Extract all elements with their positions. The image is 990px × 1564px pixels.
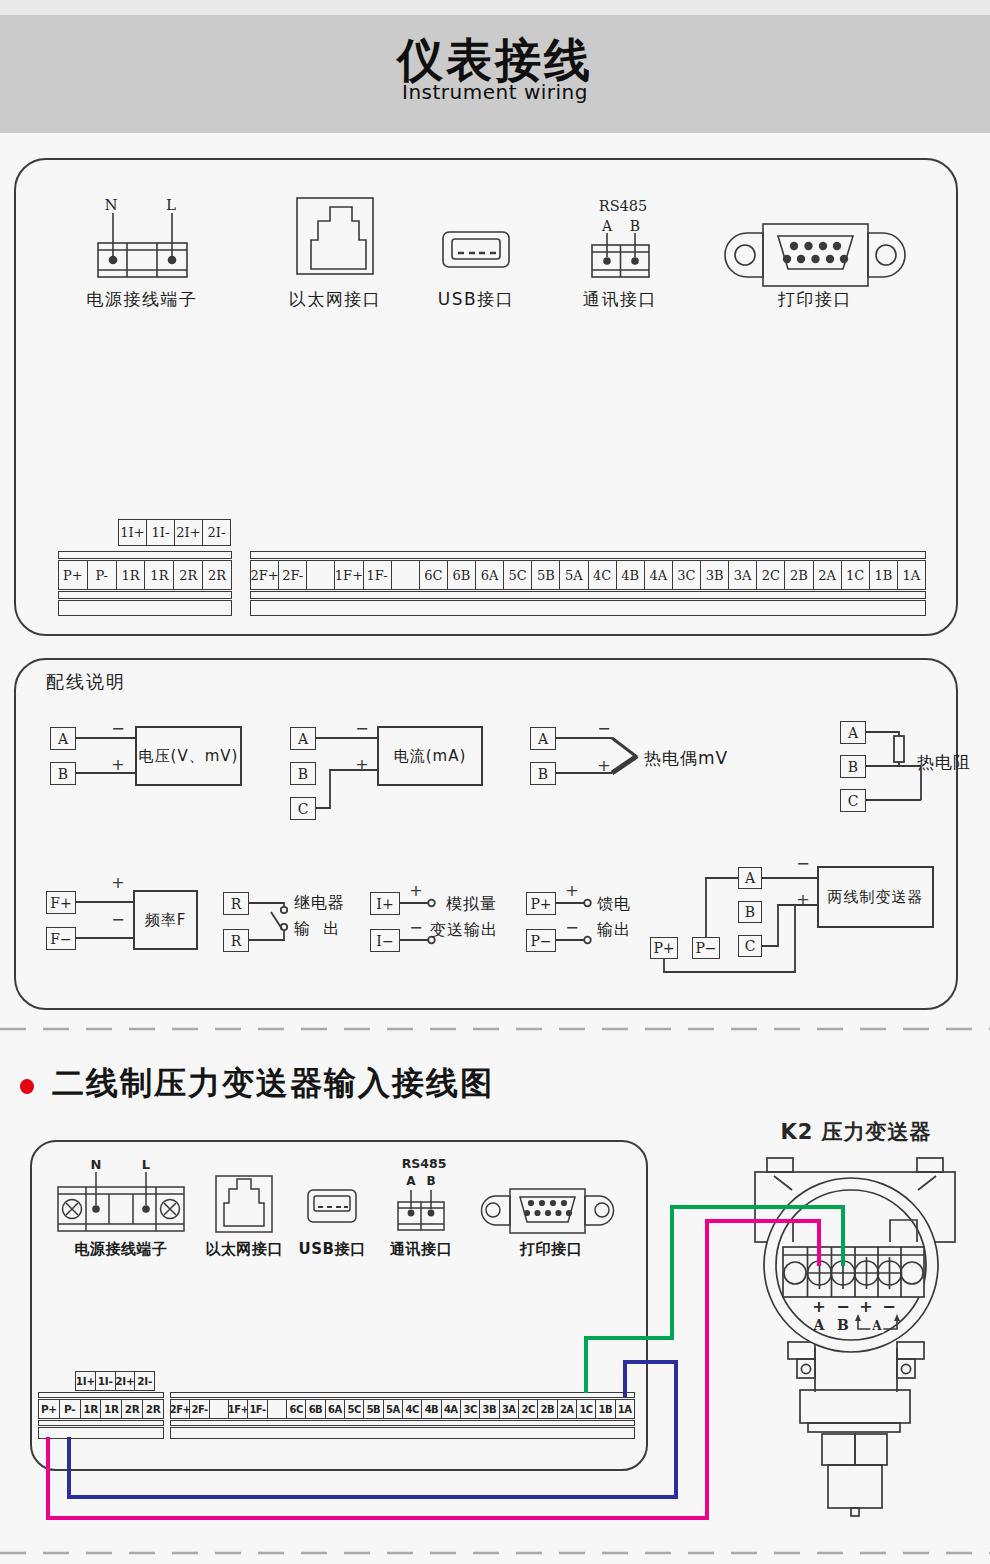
terminal-cell: 5A [383,1400,402,1418]
transmitter-sign-1: + [812,1297,825,1316]
rs485-pin-a: A [406,1174,415,1188]
feed-out-label-line2: 输出 [597,920,631,941]
wiring-notes-title: 配线说明 [46,670,126,694]
pressure-transmitter-drawing [755,1158,955,1516]
terminal-b: B [738,901,762,923]
terminal-cells: 2F+2F-1F+1F-6C6B6A5C5B5A4C4B4A3C3B3A2C2B… [170,1399,635,1419]
pin-l-label: L [142,1157,150,1172]
terminal-cell: 1F- [247,1400,266,1418]
terminal-cell: 2R [173,561,202,589]
voltage-box: 电压(V、mV) [135,726,242,786]
minus-sign: − [355,719,368,738]
strip-base [250,600,926,616]
rs485-label: RS485 [402,1156,447,1171]
terminal-c: C [738,935,762,957]
terminal-p-plus: P+ [526,892,556,915]
page-header: 仪表接线 Instrument wiring [0,15,990,133]
terminal-cell: 4A [441,1400,460,1418]
terminal-a: A [738,867,762,889]
terminal-cell: 2R [202,561,231,589]
terminal-cell: 6B [305,1400,324,1418]
wiring-notes-panel [14,658,958,1010]
terminal-cell: 1R [100,1400,121,1418]
strip-bar [250,551,926,559]
terminal-cell: P+ [39,1400,59,1418]
plus-sign: + [111,873,124,892]
terminal-cell: 1I+ [76,1372,95,1390]
terminal-cell: 2C [518,1400,537,1418]
minus-sign: − [796,854,809,873]
terminal-cell [267,1400,286,1418]
terminal-cell: 4B [616,561,644,589]
terminal-p-plus: P+ [650,937,678,959]
terminal-cell: P- [87,561,116,589]
frequency-box: 频率F [133,890,198,950]
relay-label-line2: 输 出 [294,919,340,940]
terminal-cell: 5B [531,561,559,589]
terminal-cells: P+P-1R1R2R2R [38,1399,164,1419]
pin-l-label: L [166,196,176,214]
terminal-cell: 4A [644,561,672,589]
terminal-a: A [840,721,866,744]
terminal-b: B [530,762,556,785]
terminal-cell: 2I- [134,1372,154,1390]
transmitter-sign-2: − [836,1297,849,1316]
strip-base [38,1427,164,1439]
terminal-cell: 1B [595,1400,614,1418]
rtd-label: 热电阻 [917,751,971,774]
rs485-pin-b: B [630,218,640,234]
plus-sign: + [111,755,124,774]
minus-sign: − [409,918,422,937]
terminal-cell: 3B [479,1400,498,1418]
terminal-cell: 3C [460,1400,479,1418]
analog-out-label-line2: 变送输出 [430,920,498,941]
power-port-label: 电源接线端子 [75,1240,168,1259]
terminal-cell: 2I+ [115,1372,135,1390]
printer-port-label: 打印接口 [520,1240,582,1259]
strip-bar [38,1392,164,1398]
terminal-a: A [50,727,76,750]
transmitter-screws [808,1257,902,1289]
relay-label-line1: 继电器 [294,893,345,914]
terminal-cell: 6C [419,561,447,589]
ethernet-port-label: 以太网接口 [205,1240,283,1259]
terminal-cell: 3A [499,1400,518,1418]
terminal-cell: 1B [869,561,897,589]
terminal-cells: P+P-1R1R2R2R [58,560,232,590]
usb-port-label: USB接口 [299,1240,366,1259]
terminal-cell: 2I+ [174,520,202,545]
right-terminal-strip: 2F+2F-1F+1F-6C6B6A5C5B5A4C4B4A3C3B3A2C2B… [250,551,926,616]
terminal-cell: 4C [402,1400,421,1418]
right-terminal-strip-small: 2F+2F-1F+1F-6C6B6A5C5B5A4C4B4A3C3B3A2C2B… [170,1392,635,1439]
terminal-cell: 1F+ [228,1400,247,1418]
left-terminal-strip: P+P-1R1R2R2R [58,551,232,616]
pin-n-label: N [91,1157,102,1172]
terminal-p-minus: P− [526,929,556,952]
terminal-c: C [840,789,866,812]
terminal-cell: 2B [784,561,812,589]
terminal-cell [209,1400,228,1418]
rs485-label: RS485 [599,198,648,214]
terminal-p-minus: P− [692,937,720,959]
terminal-a: A [530,727,556,750]
terminal-cell: 2C [756,561,784,589]
terminal-cell: 3A [728,561,756,589]
terminal-cell: 2F+ [251,561,278,589]
top-strip [0,0,990,15]
instrument-wiring-page: 仪表接线 Instrument wiring [0,0,990,1564]
terminal-cell: 2A [557,1400,576,1418]
page-title: 仪表接线 [0,15,990,86]
plus-sign: + [355,755,368,774]
terminal-cell: 1R [80,1400,101,1418]
plus-sign: + [565,881,578,900]
terminal-f-minus: F− [46,927,76,950]
terminal-cells: 2F+2F-1F+1F-6C6B6A5C5B5A4C4B4A3C3B3A2C2B… [250,560,926,590]
terminal-cell: 5A [559,561,587,589]
ammeter-label: A [870,1319,883,1333]
terminal-cell: 5C [344,1400,363,1418]
terminal-cell: 5C [503,561,531,589]
ethernet-port-label: 以太网接口 [289,288,382,311]
left-terminal-strip-small: P+P-1R1R2R2R [38,1392,164,1439]
transmitter-title: K2 压力变送器 [780,1118,931,1146]
strip-bar [58,591,232,599]
terminal-c: C [290,797,316,820]
usb-port-label: USB接口 [438,288,514,311]
terminal-cell: 1I+ [119,520,146,545]
minus-sign: − [597,719,610,738]
terminal-cell: 1I- [95,1372,115,1390]
terminal-cell: 1A [897,561,925,589]
terminal-i-plus: I+ [370,892,400,915]
analog-out-label-line1: 模拟量 [446,894,497,915]
strip-base [58,600,232,616]
terminal-b: B [840,755,866,778]
terminal-cell: P+ [59,561,87,589]
terminal-cell: 4B [421,1400,440,1418]
transmitter-pin-b: B [837,1317,849,1333]
transmitter-sign-4: − [882,1297,895,1316]
plus-sign: + [597,756,610,775]
pin-n-label: N [104,196,117,214]
strip-bar [170,1420,635,1426]
thermocouple-label: 热电偶mV [644,747,728,770]
rs485-pin-a: A [602,218,612,234]
terminal-cell: 1R [116,561,145,589]
red-bullet-icon [20,1079,34,1094]
minus-sign: − [111,719,124,738]
terminal-cell: 1I- [146,520,174,545]
terminal-cell: 2I- [202,520,230,545]
minus-sign: − [565,918,578,937]
plus-sign: + [796,890,809,909]
terminal-cell: 1C [576,1400,595,1418]
terminal-cell: 2F- [278,561,306,589]
terminal-r2: R [223,929,249,952]
printer-port-label: 打印接口 [778,288,852,311]
terminal-cell: 6C [286,1400,305,1418]
terminal-cell [306,561,334,589]
strip-bar [38,1420,164,1426]
terminal-cell: 1F+ [334,561,362,589]
terminal-cell: P- [59,1400,80,1418]
terminal-cell: 2R [142,1400,163,1418]
transmitter-sign-3: + [859,1297,872,1316]
comm-port-label: 通讯接口 [583,288,657,311]
comm-port-label: 通讯接口 [390,1240,452,1259]
power-port-label: 电源接线端子 [87,288,198,311]
terminal-cell: 2F- [189,1400,208,1418]
rs485-pin-b: B [426,1174,435,1188]
terminal-b: B [290,762,316,785]
terminal-cell: 2R [121,1400,142,1418]
terminal-cell: 1F- [363,561,391,589]
strip-bar [170,1392,635,1398]
terminal-cell: 2B [537,1400,556,1418]
terminal-cell: 6A [325,1400,344,1418]
terminal-cell: 6A [475,561,503,589]
feed-out-label-line1: 馈电 [597,894,631,915]
section-heading: 二线制压力变送器输入接线图 [52,1062,494,1106]
terminal-b: B [50,762,76,785]
terminal-a: A [290,727,316,750]
transmitter-pin-a: A [814,1317,825,1333]
upper-terminal-row-small: 1I+1I-2I+2I- [75,1371,155,1391]
plus-sign: + [409,881,422,900]
current-box: 电流(mA) [377,726,483,786]
terminal-cell: 1C [841,561,869,589]
terminal-r1: R [223,892,249,915]
two-wire-transmitter-box: 两线制变送器 [817,866,934,928]
terminal-cell: 2A [813,561,841,589]
terminal-cell [391,561,419,589]
terminal-cell: 1A [615,1400,634,1418]
terminal-cell: 3B [700,561,728,589]
terminal-f-plus: F+ [46,891,76,914]
terminal-cell: 3C [672,561,700,589]
terminal-cell: 6B [447,561,475,589]
terminal-cell: 5B [363,1400,382,1418]
minus-sign: − [111,910,124,929]
terminal-cell: 2F+ [171,1400,189,1418]
page-subtitle: Instrument wiring [0,80,990,104]
strip-bar [58,551,232,559]
upper-terminal-row: 1I+1I-2I+2I- [118,519,231,546]
strip-base [170,1427,635,1439]
strip-bar [250,591,926,599]
terminal-i-minus: I− [370,929,400,952]
terminal-cell: 4C [588,561,616,589]
terminal-cell: 1R [144,561,173,589]
